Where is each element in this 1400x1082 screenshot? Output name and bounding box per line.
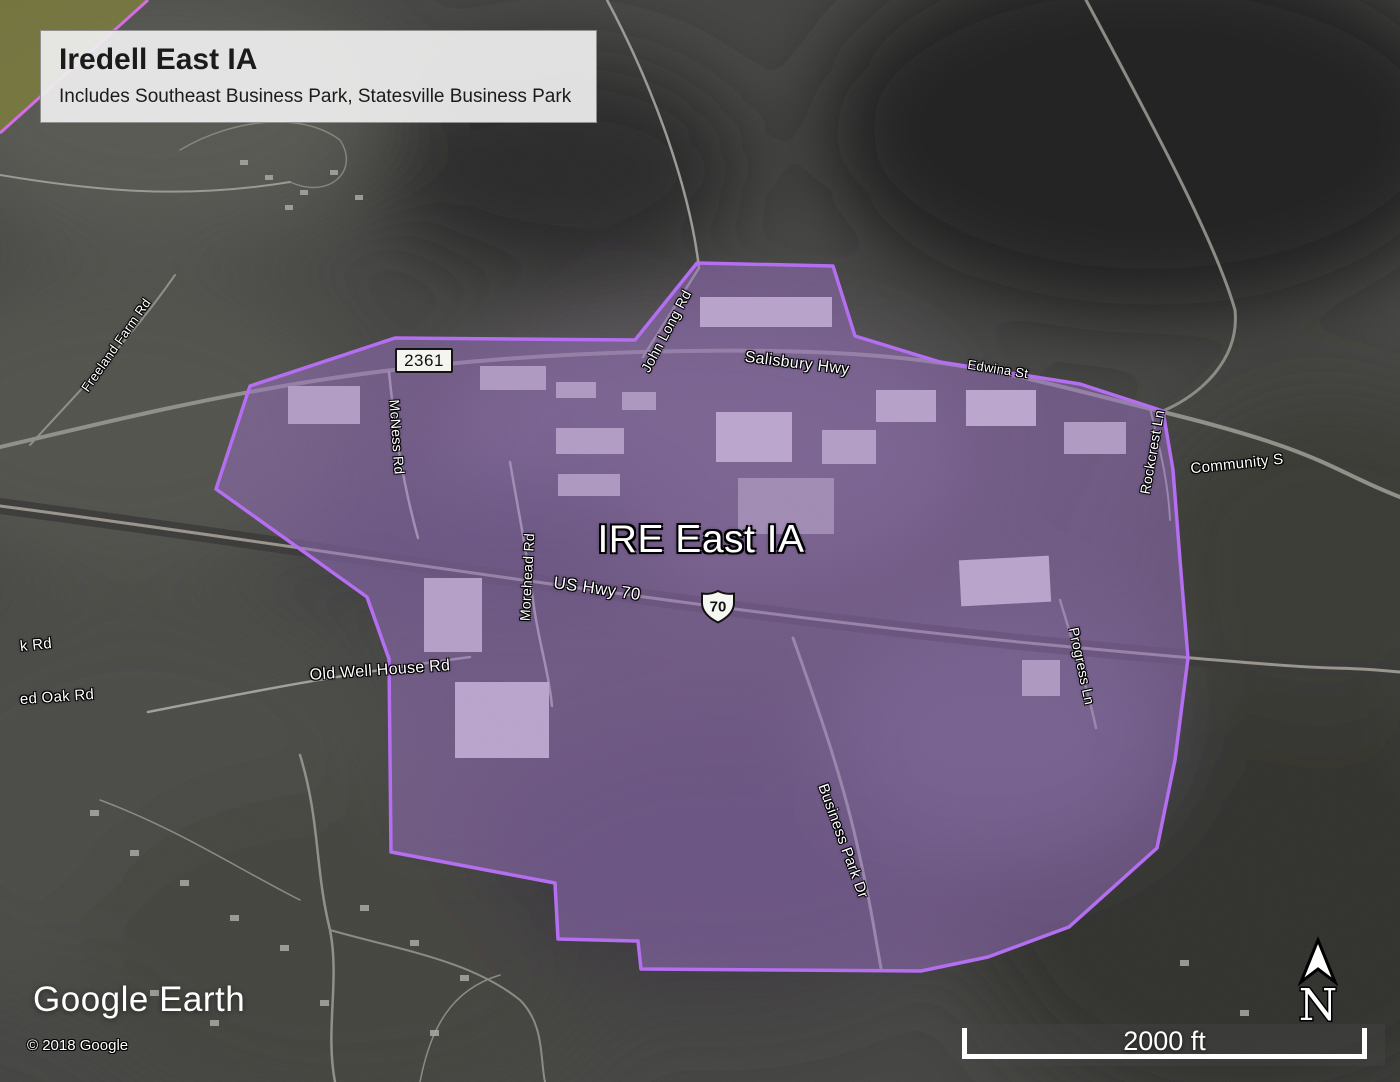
route-shield-us70: 70: [700, 589, 736, 625]
area-label: IRE East IA: [597, 518, 804, 562]
north-letter: N: [1299, 980, 1338, 1028]
north-indicator: N: [1288, 936, 1348, 1028]
scale-bar-label: 2000 ft: [962, 1026, 1367, 1057]
route-shield-2361: 2361: [395, 348, 453, 373]
us70-shield-number: 70: [710, 599, 727, 616]
map-subtitle: Includes Southeast Business Park, States…: [59, 86, 578, 108]
map-title: Iredell East IA: [59, 41, 578, 79]
map-canvas[interactable]: Salisbury HwyJohn Long RdEdwina StRockcr…: [0, 0, 1400, 1082]
google-earth-logo: Google Earth: [33, 980, 245, 1020]
copyright-text: © 2018 Google: [27, 1037, 128, 1054]
title-card: Iredell East IA Includes Southeast Busin…: [40, 30, 597, 123]
north-arrow-icon: [1301, 940, 1335, 982]
